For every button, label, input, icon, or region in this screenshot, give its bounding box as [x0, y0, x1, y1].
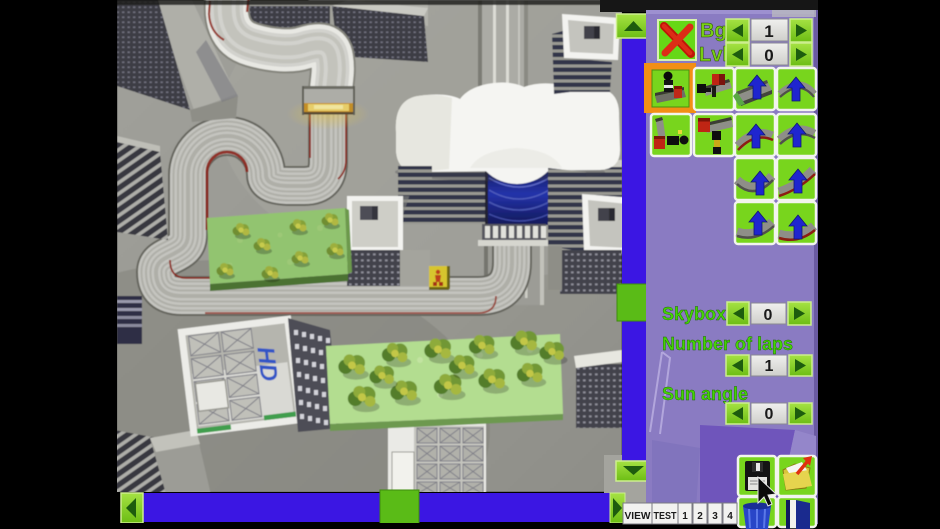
svg-text:Number of laps: Number of laps [662, 334, 793, 354]
svg-text:0: 0 [764, 46, 773, 65]
svg-text:2: 2 [697, 511, 703, 522]
svg-text:Skybox: Skybox [662, 304, 726, 324]
svg-text:3: 3 [712, 511, 718, 522]
svg-text:Bg: Bg [700, 20, 727, 42]
svg-text:0: 0 [764, 307, 773, 324]
svg-text:1: 1 [764, 22, 773, 41]
svg-text:Lvl: Lvl [699, 44, 728, 66]
svg-text:TEST: TEST [654, 511, 677, 522]
svg-text:4: 4 [727, 511, 733, 522]
svg-text:VIEW: VIEW [625, 511, 652, 522]
svg-text:Sun angle: Sun angle [662, 384, 748, 404]
svg-text:1: 1 [682, 511, 688, 522]
svg-text:0: 0 [765, 406, 774, 423]
svg-text:1: 1 [765, 358, 774, 375]
